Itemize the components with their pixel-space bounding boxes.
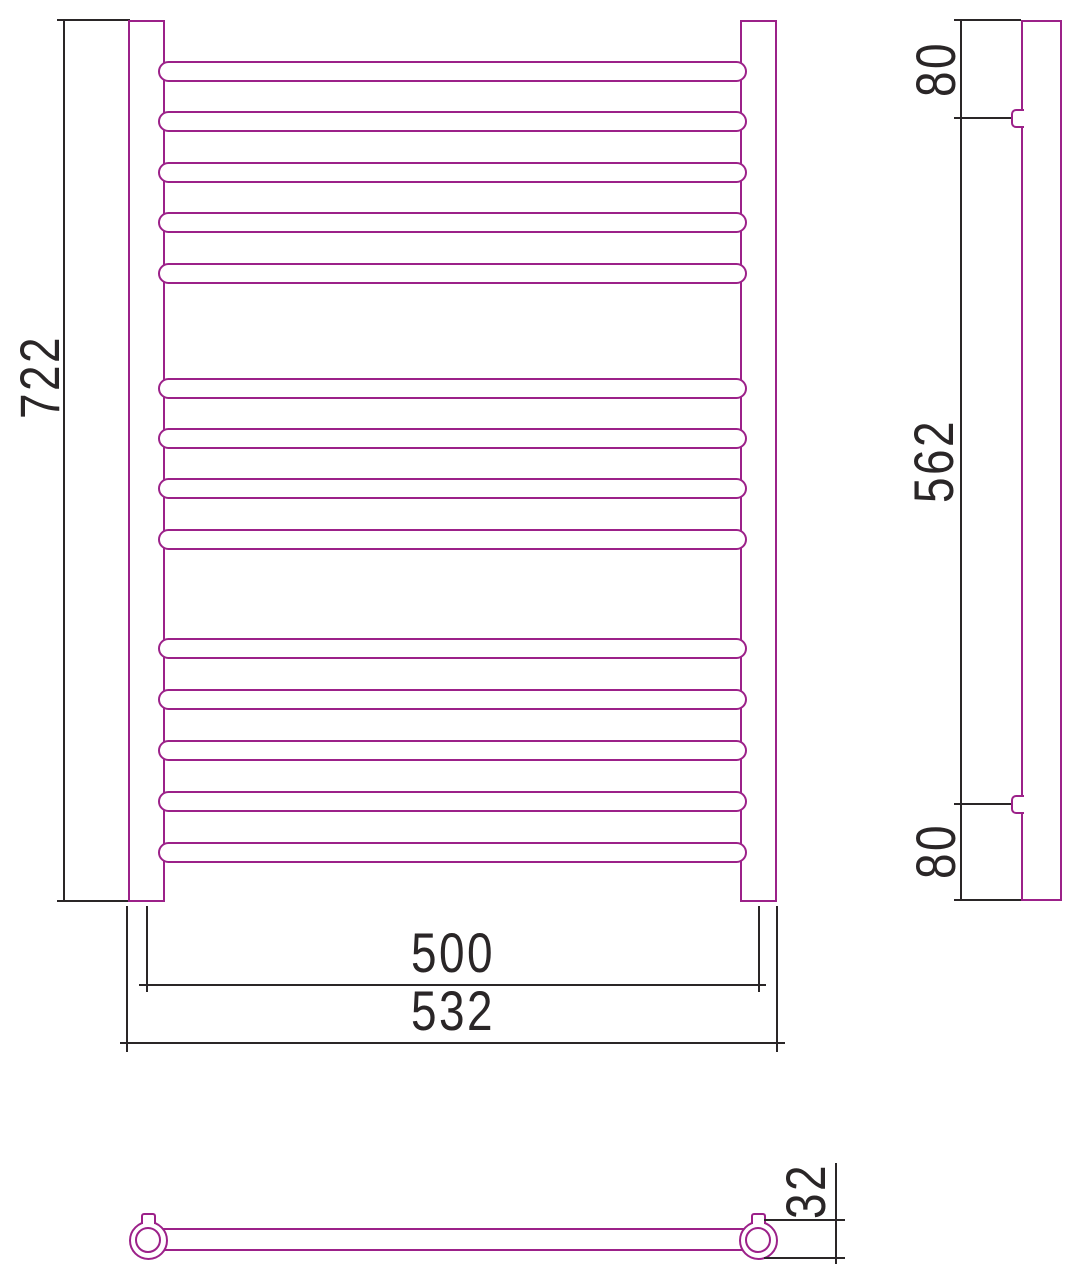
rail — [158, 478, 747, 499]
side-tick-bottom — [954, 899, 1021, 901]
rail — [158, 212, 747, 233]
rail — [158, 638, 747, 659]
rail — [158, 378, 747, 399]
bottom-right-post-inner — [745, 1227, 771, 1253]
side-tick-upper-bracket — [954, 117, 1013, 119]
tube-diameter-dim-label: 32 — [778, 1163, 834, 1219]
rail — [158, 791, 747, 812]
side-top-offset-label: 80 — [908, 41, 964, 97]
mount-width-ext-left — [146, 906, 148, 992]
outer-width-dim-line — [120, 1042, 785, 1044]
side-bottom-offset-label: 80 — [908, 823, 964, 879]
bottom-left-post-inner — [135, 1227, 161, 1253]
outer-width-dim-label: 532 — [411, 983, 495, 1039]
rail — [158, 162, 747, 183]
rail — [158, 740, 747, 761]
outer-width-ext-right — [776, 906, 778, 1052]
bottom-rail-bar — [148, 1228, 758, 1251]
side-bracket-bottom — [1011, 795, 1024, 814]
rail — [158, 428, 747, 449]
rail — [158, 529, 747, 550]
mount-width-dim-label: 500 — [411, 925, 495, 981]
front-height-dim-line — [63, 20, 65, 902]
side-tick-lower-bracket — [954, 803, 1013, 805]
rail — [158, 689, 747, 710]
rail — [158, 842, 747, 863]
side-bracket-top — [1011, 109, 1024, 128]
drawing-sheet: 722 500 532 80 562 80 — [0, 0, 1082, 1280]
outer-width-ext-left — [126, 906, 128, 1052]
right-post — [740, 20, 777, 902]
side-tube — [1021, 20, 1062, 901]
side-tick-top — [954, 19, 1021, 21]
rail — [158, 263, 747, 284]
front-height-dim-label: 722 — [12, 335, 68, 419]
bottom-left-bracket — [141, 1213, 156, 1224]
rail — [158, 61, 747, 82]
rail — [158, 111, 747, 132]
front-height-ext-bottom — [57, 900, 130, 902]
front-height-ext-top — [57, 19, 130, 21]
left-post — [128, 20, 165, 902]
tube-diameter-tick-bottom — [764, 1257, 845, 1259]
tube-diameter-tick-top — [764, 1219, 845, 1221]
side-bracket-span-label: 562 — [906, 419, 962, 503]
mount-width-ext-right — [758, 906, 760, 992]
